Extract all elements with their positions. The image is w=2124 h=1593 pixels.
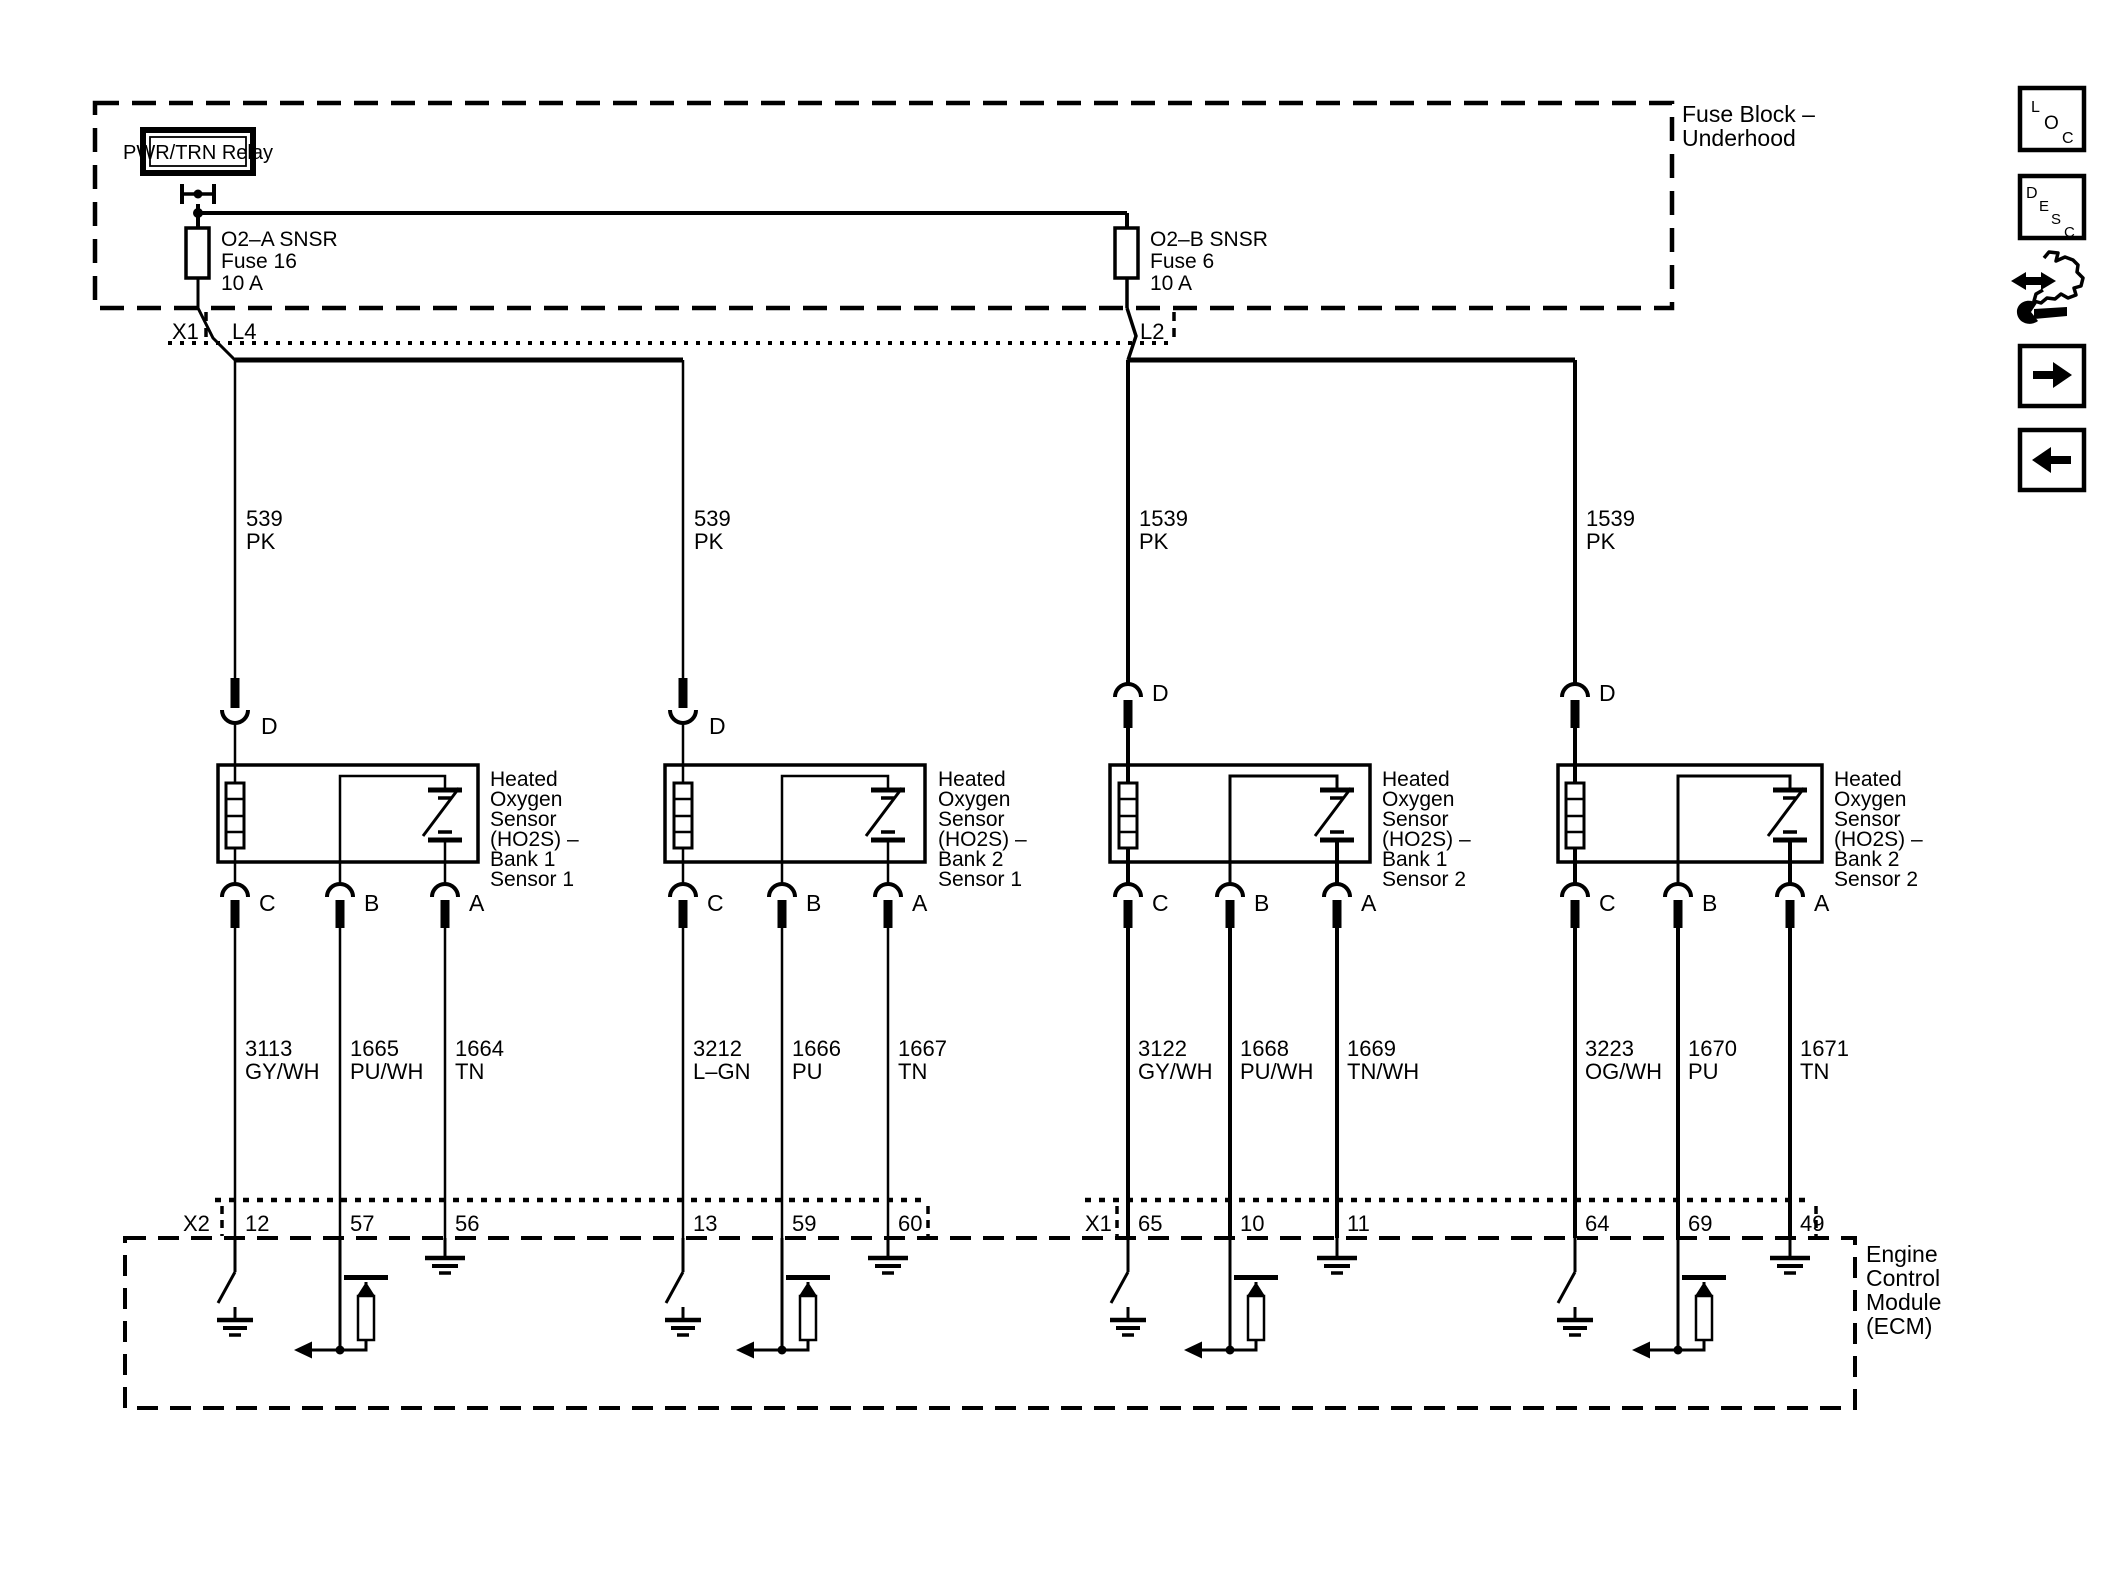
signal-pullup-icon [736,1238,830,1359]
pin-label-a: A [1814,890,1830,916]
wire-color: GY/WH [245,1059,320,1084]
fuse-block-label: Fuse Block – [1682,101,1815,127]
pin-label-a: A [912,890,928,916]
pin-label-d: D [709,713,726,739]
cavity-label-l4: L4 [232,319,256,344]
wire-circuit: 1665 [350,1036,399,1061]
heater-low-side-driver-icon [1110,1238,1146,1335]
wire-circuit: 1668 [1240,1036,1289,1061]
sensor-box [1558,765,1822,862]
sensor-name: Sensor 2 [1834,868,1918,891]
loc-button[interactable]: L O C [2020,88,2084,150]
wire-jog [1127,308,1136,360]
inline-connector-icon [222,884,248,928]
fuse-block-label: Underhood [1682,125,1796,151]
wire-circuit: 3223 [1585,1036,1634,1061]
wire-color: GY/WH [1138,1059,1213,1084]
wire-color: PK [1586,529,1616,554]
ecm-name: (ECM) [1866,1313,1932,1339]
o2-cell-icon [1768,788,1807,840]
wire-circuit: 1539 [1139,506,1188,531]
fuse-rating: 10 A [1150,272,1192,295]
pin-label-b: B [1254,890,1269,916]
pin-label-a: A [469,890,485,916]
ground-icon [425,1238,465,1273]
pin-label-c: C [1152,890,1169,916]
wire-color: PU/WH [1240,1059,1313,1084]
wire-circuit: 3212 [693,1036,742,1061]
relay-contact-icon [182,184,214,204]
ecm-pin-number: 11 [1347,1211,1370,1236]
ecm-pin-number: 10 [1240,1211,1264,1236]
wire-color: TN [1800,1059,1829,1084]
pin-label-b: B [364,890,379,916]
ecm-name: Module [1866,1289,1941,1315]
heater-low-side-driver-icon [217,1238,253,1335]
ecm-name: Engine [1866,1241,1938,1267]
pwr-trn-relay: PWR/TRN Relay [123,130,273,173]
ecm-pin-number: 69 [1688,1211,1712,1236]
inline-connector-icon [1115,684,1141,728]
heater-low-side-driver-icon [1557,1238,1593,1335]
sensor-ho2s-bank2-sensor1: D C B A Heated Oxygen Sensor (HO2S) – Ba… [665,678,1027,1238]
wire-circuit: 1664 [455,1036,504,1061]
desc-letter: C [2064,224,2075,241]
wire-color: PU [1688,1059,1719,1084]
ground-icon [868,1238,908,1273]
fuse-name: O2–A SNSR [221,228,338,251]
sensor-ho2s-bank2-sensor2: D C B A Heated Oxygen Sensor (HO2S) – Ba… [1558,680,1923,1238]
wire-circuit: 539 [246,506,283,531]
sensor-box [665,765,925,862]
desc-letter: D [2026,185,2038,202]
ecm-border [125,1238,1855,1408]
pin-label-c: C [1599,890,1616,916]
sensor-name: Sensor 1 [490,868,574,891]
ho2s-wiring-diagram: Fuse Block – Underhood PWR/TRN Relay O2–… [0,0,2124,1593]
ecm-name: Control [1866,1265,1940,1291]
side-nav-panel: L O C D E S C [2011,88,2084,490]
wiring-diagram-page: Fuse Block – Underhood PWR/TRN Relay O2–… [0,0,2124,1593]
inline-connector-icon [875,884,901,928]
desc-letter: S [2051,211,2061,228]
ecm-connector-x2-label: X2 [183,1211,210,1236]
pin-label-c: C [259,890,276,916]
wire-color: PU [792,1059,823,1084]
ecm-pin-number: 57 [350,1211,374,1236]
inline-connector-icon [1665,884,1691,928]
ecm-pin-number: 49 [1800,1211,1824,1236]
wire-color: L–GN [693,1059,750,1084]
loc-letter: C [2062,130,2074,147]
fuse-block-connector-row: X1 L4 L2 [168,308,1176,360]
pin-label-c: C [707,890,724,916]
pin-label-d: D [1152,680,1169,706]
inline-connector-icon [1562,884,1588,928]
loc-letter: O [2044,113,2059,134]
inline-connector-icon [670,678,696,723]
ground-icon [1770,1238,1810,1273]
sensor-ho2s-bank1-sensor1: D C B A Heated Oxygen Sensor (HO2S) – Ba… [218,678,579,1238]
fuse-o2b: O2–B SNSR Fuse 6 10 A [1115,228,1268,308]
ecm-pin-number: 65 [1138,1211,1162,1236]
wrench-handle-icon [2034,307,2067,319]
fuse-rating: 10 A [221,272,263,295]
cavity-label-l2: L2 [1140,319,1164,344]
sensor-name: Sensor 2 [1382,868,1466,891]
loc-letter: L [2031,99,2040,116]
wire-color: TN [898,1059,927,1084]
wire-color: TN [455,1059,484,1084]
fuse-name: O2–B SNSR [1150,228,1268,251]
pin-label-d: D [1599,680,1616,706]
inline-connector-icon [1324,884,1350,928]
pin-label-a: A [1361,890,1377,916]
wire-color: OG/WH [1585,1059,1662,1084]
desc-button[interactable]: D E S C [2020,176,2084,241]
ecm-pin-number: 60 [898,1211,922,1236]
fuse-number: Fuse 6 [1150,250,1214,273]
inline-connector-icon [327,884,353,928]
inline-connector-icon [1217,884,1243,928]
repair-tools-icon[interactable] [2011,252,2083,324]
o2-cell-icon [423,788,462,840]
fuse-block-underhood: Fuse Block – Underhood PWR/TRN Relay O2–… [95,101,1815,308]
connector-shell-label: X1 [172,319,199,344]
ground-icon [1317,1238,1357,1273]
signal-pullup-icon [1632,1238,1726,1359]
inline-connector-icon [670,884,696,928]
pin-label-b: B [806,890,821,916]
inline-connector-icon [1115,884,1141,928]
heater-low-side-driver-icon [665,1238,701,1335]
inline-connector-icon [769,884,795,928]
wire-color: PK [1139,529,1169,554]
inline-connector-icon [1777,884,1803,928]
wire-circuit: 1669 [1347,1036,1396,1061]
wire-jog [198,308,235,360]
pin-label-d: D [261,713,278,739]
feed-wire-labels: 539 PK 539 PK 1539 PK 1539 PK [246,506,1635,554]
o2-cell-icon [1315,788,1354,840]
ecm-connector-x1-label: X1 [1085,1211,1112,1236]
wire-circuit: 3113 [245,1036,292,1061]
desc-letter: E [2039,198,2049,215]
fuse-o2a: O2–A SNSR Fuse 16 10 A [186,228,338,308]
next-arrow-button[interactable] [2020,346,2084,406]
fuse-number: Fuse 16 [221,250,297,273]
signal-pullup-icon [294,1238,388,1359]
ecm-pin-number: 13 [693,1211,717,1236]
o2-cell-icon [866,788,905,840]
ecm-pin-number: 12 [245,1211,269,1236]
inline-connector-icon [222,678,248,723]
fuse-icon [186,228,209,278]
signal-pullup-icon [1184,1238,1278,1359]
ecm-pin-number: 56 [455,1211,479,1236]
wire-circuit: 3122 [1138,1036,1187,1061]
ecm-pin-number: 59 [792,1211,816,1236]
ecm-pin-number: 64 [1585,1211,1609,1236]
engine-control-module: X2 X1 12 57 56 13 59 60 65 10 11 64 69 4… [125,1200,1941,1408]
wire-color: PU/WH [350,1059,423,1084]
wire-circuit: 1539 [1586,506,1635,531]
pin-label-b: B [1702,890,1717,916]
relay-label: PWR/TRN Relay [123,142,273,164]
fuse-block-border [95,103,1672,308]
wire-color: TN/WH [1347,1059,1419,1084]
wire-circuit: 1671 [1800,1036,1849,1061]
back-arrow-button[interactable] [2020,430,2084,490]
sensor-ho2s-bank1-sensor2: D C B A Heated Oxygen Sensor (HO2S) – Ba… [1110,680,1471,1238]
inline-connector-icon [432,884,458,928]
wire-circuit: 1666 [792,1036,841,1061]
wire-circuit: 539 [694,506,731,531]
fuse-icon [1115,228,1138,278]
wire-color: PK [246,529,276,554]
inline-connector-icon [1562,684,1588,728]
wire-circuit: 1670 [1688,1036,1737,1061]
double-arrow-icon [2011,272,2056,290]
sensor-name: Sensor 1 [938,868,1022,891]
wire-color: PK [694,529,724,554]
wire-circuit: 1667 [898,1036,947,1061]
